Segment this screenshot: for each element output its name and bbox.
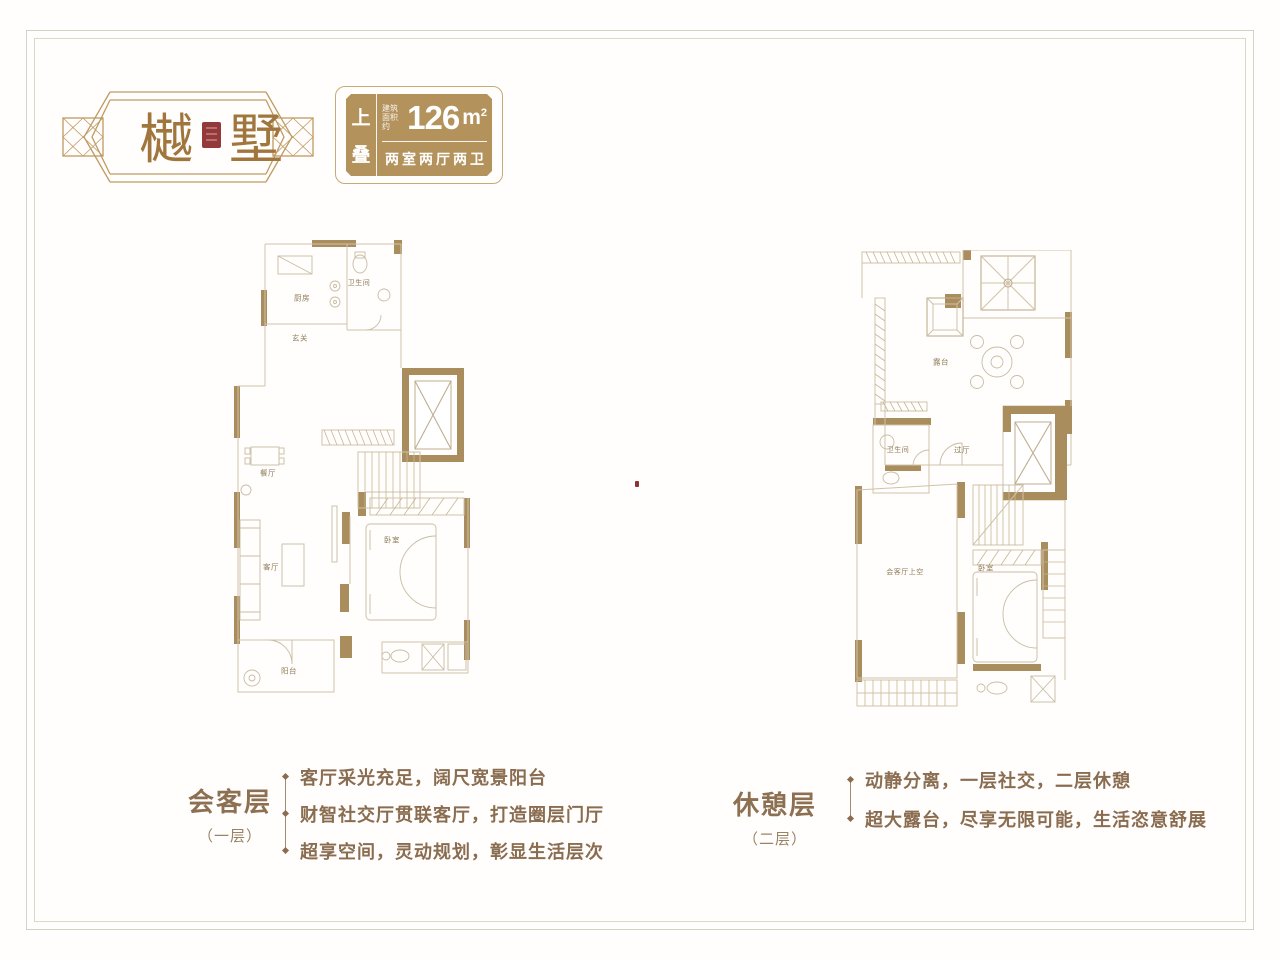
terrace-table-chairs bbox=[971, 336, 1024, 389]
bullet-text: 超享空间，灵动规划，彰显生活层次 bbox=[300, 838, 604, 864]
floorplan-poster: 樾 墅 上 叠 建筑 面积约 126 m2 两 bbox=[0, 0, 1280, 960]
room-label-bathroom: 卫生间 bbox=[887, 445, 910, 455]
room-label-kitchen: 厨房 bbox=[294, 293, 310, 304]
room-label-balcony: 阳台 bbox=[281, 666, 297, 677]
second-floor-bullets: 动静分离，一层社交，二层休憩 超大露台，尽享无限可能，生活恣意舒展 bbox=[848, 760, 1207, 838]
second-bath-fixtures bbox=[382, 644, 466, 670]
badge-area-number: 126 bbox=[407, 101, 459, 134]
badge-area-prefix-line1: 建筑 bbox=[382, 104, 404, 113]
badge-right-panel: 建筑 面积约 126 m2 两室两厅两卫 bbox=[377, 94, 492, 176]
badge-area-prefix: 建筑 面积约 bbox=[382, 104, 404, 131]
second-floor-note-title: 休憩层 （二层） bbox=[710, 785, 840, 849]
first-floor-title: 会客层 bbox=[160, 782, 300, 819]
bathroom-fixtures bbox=[353, 252, 390, 330]
bullet-diamond-icon bbox=[847, 776, 854, 783]
void-room bbox=[857, 484, 957, 678]
bedroom-furniture bbox=[366, 498, 464, 620]
room-label-living: 客厅 bbox=[263, 562, 279, 573]
room-label-foyer: 玄关 bbox=[292, 333, 308, 344]
elevator bbox=[1003, 406, 1067, 500]
logo-char-left: 樾 bbox=[139, 108, 193, 171]
bullet-row: 超大露台，尽享无限可能，生活恣意舒展 bbox=[848, 799, 1207, 838]
badge-tag-upper-duplex: 上 叠 bbox=[346, 94, 377, 176]
elevator bbox=[402, 368, 464, 462]
first-floor-bullets: 客厅采光充足，阔尺宽景阳台 财智社交厅贯联客厅，打造圈层门厅 超享空间，灵动规划… bbox=[283, 758, 604, 869]
badge-tag-char2: 叠 bbox=[351, 140, 370, 167]
floorplan-first-floor: 厨房 卫生间 玄关 餐厅 客厅 卧室 阳台 bbox=[232, 240, 470, 695]
area-badge: 上 叠 建筑 面积约 126 m2 两室两厅两卫 bbox=[335, 86, 503, 184]
brand-logo: 樾 墅 bbox=[58, 80, 318, 200]
badge-area-prefix-line2: 面积约 bbox=[382, 113, 404, 131]
floorplan-second-floor-drawing bbox=[845, 250, 1095, 710]
badge-area-row: 建筑 面积约 126 m2 bbox=[382, 94, 487, 142]
room-label-bathroom: 卫生间 bbox=[348, 278, 371, 288]
room-label-hall: 过厅 bbox=[954, 445, 970, 456]
room-label-bedroom: 卧室 bbox=[384, 535, 400, 546]
bullet-row: 超享空间，灵动规划，彰显生活层次 bbox=[283, 832, 604, 869]
floorplan-second-floor: 露台 卫生间 过厅 会客厅上空 卧室 bbox=[845, 250, 1095, 710]
living-furniture bbox=[240, 506, 337, 620]
first-floor-subtitle: （一层） bbox=[160, 825, 300, 846]
second-floor-title: 休憩层 bbox=[710, 785, 840, 822]
area-badge-body: 上 叠 建筑 面积约 126 m2 两室两厅两卫 bbox=[346, 94, 492, 176]
bullet-row: 动静分离，一层社交，二层休憩 bbox=[848, 760, 1207, 799]
second-floor-subtitle: （二层） bbox=[710, 828, 840, 849]
bullet-row: 财智社交厅贯联客厅，打造圈层门厅 bbox=[283, 795, 604, 832]
walls bbox=[234, 240, 470, 660]
badge-tag-char1: 上 bbox=[351, 103, 370, 130]
logo-seal bbox=[202, 122, 221, 148]
bullet-diamond-icon bbox=[282, 847, 289, 854]
logo-char-right: 墅 bbox=[229, 108, 283, 171]
bullet-text: 动静分离，一层社交，二层休憩 bbox=[865, 767, 1131, 793]
bullet-diamond-icon bbox=[282, 810, 289, 817]
storage-grille bbox=[322, 430, 394, 445]
bullet-row: 客厅采光充足，阔尺宽景阳台 bbox=[283, 758, 604, 795]
bullet-diamond-icon bbox=[282, 773, 289, 780]
bullet-text: 超大露台，尽享无限可能，生活恣意舒展 bbox=[865, 806, 1207, 832]
bullet-text: 客厅采光充足，阔尺宽景阳台 bbox=[300, 764, 547, 790]
badge-room-layout: 两室两厅两卫 bbox=[377, 142, 492, 176]
room-label-dining: 餐厅 bbox=[260, 468, 276, 479]
stairs bbox=[973, 485, 1023, 545]
lower-fixtures bbox=[977, 500, 1065, 702]
badge-area-unit: m2 bbox=[462, 107, 487, 128]
room-label-bedroom: 卧室 bbox=[978, 563, 994, 574]
bullet-diamond-icon bbox=[847, 815, 854, 822]
room-label-void-above-living: 会客厅上空 bbox=[886, 567, 924, 577]
red-mark bbox=[635, 481, 639, 487]
lower-deck bbox=[857, 680, 957, 706]
first-floor-note-title: 会客层 （一层） bbox=[160, 782, 300, 846]
room-label-terrace: 露台 bbox=[933, 357, 949, 368]
bullet-text: 财智社交厅贯联客厅，打造圈层门厅 bbox=[300, 801, 604, 827]
